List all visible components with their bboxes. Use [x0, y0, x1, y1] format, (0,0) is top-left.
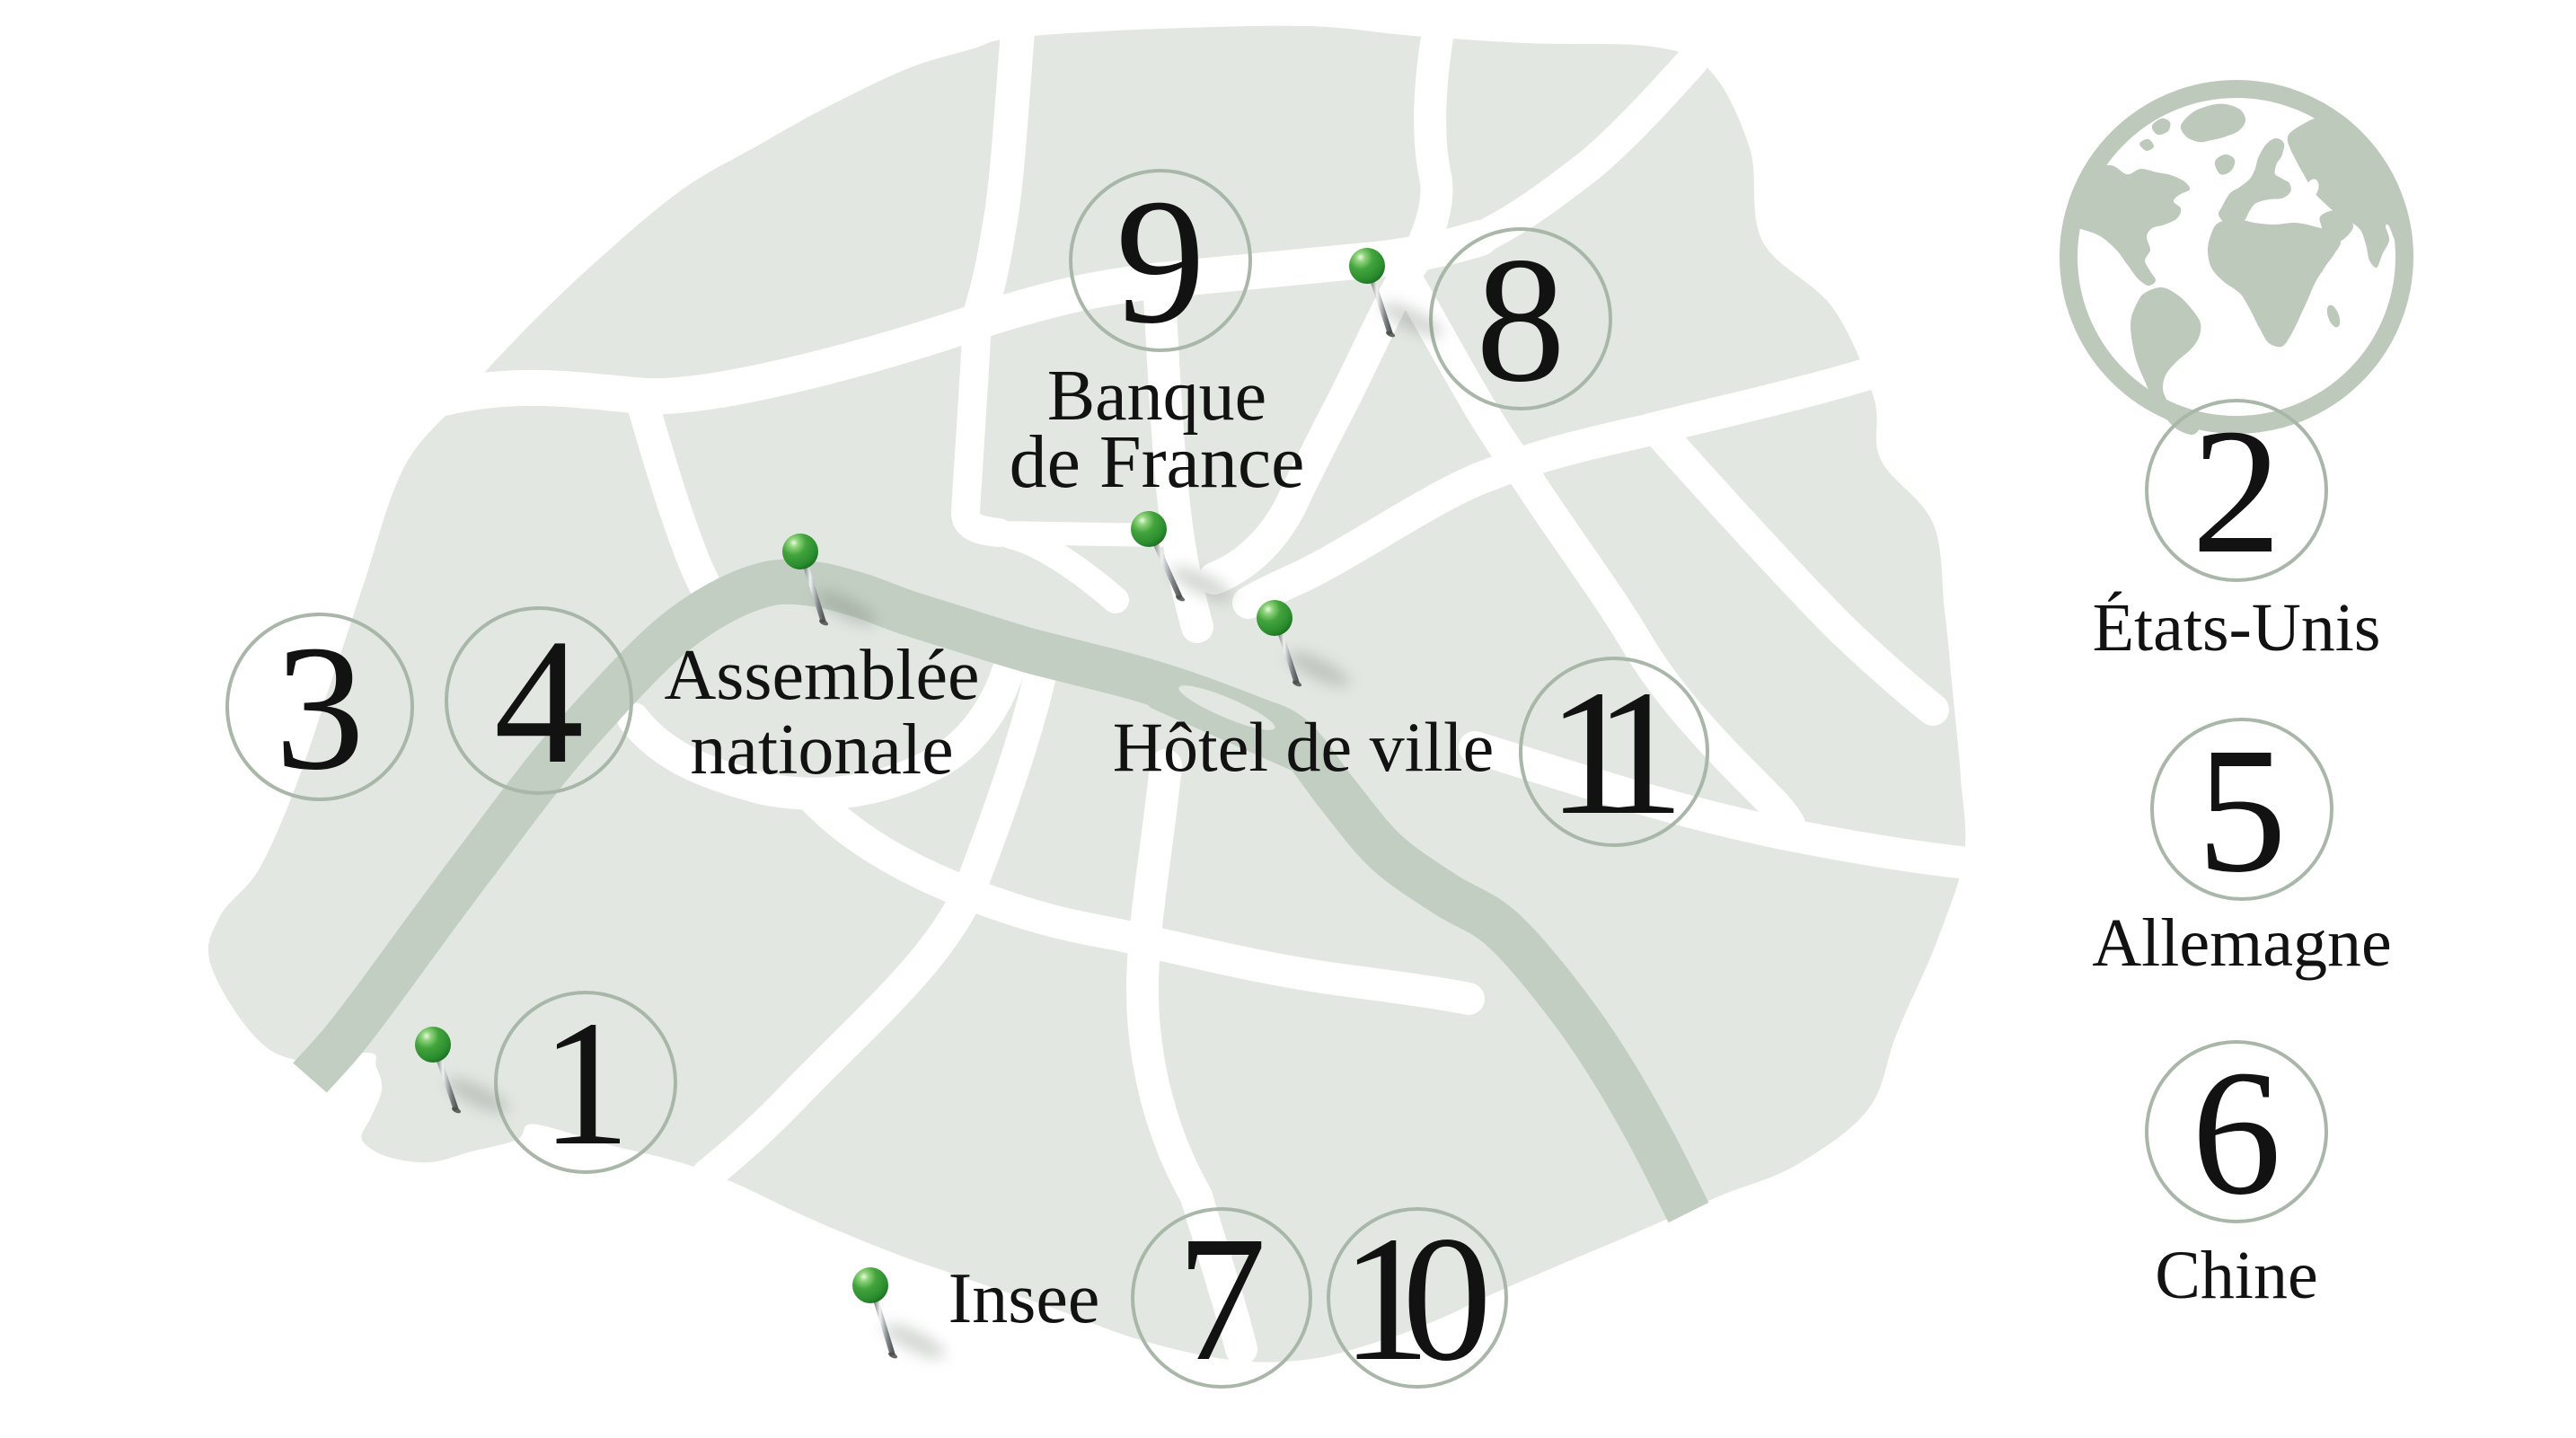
svg-text:Assemblée: Assemblée [664, 636, 979, 715]
svg-text:Allemagne: Allemagne [2092, 905, 2391, 981]
svg-text:Chine: Chine [2155, 1238, 2318, 1313]
svg-text:2: 2 [2192, 393, 2281, 591]
svg-text:6: 6 [2192, 1034, 2281, 1232]
svg-text:de France: de France [1010, 420, 1305, 504]
svg-text:Hôtel de ville: Hôtel de ville [1113, 708, 1495, 786]
svg-text:États-Unis: États-Unis [2093, 590, 2381, 666]
svg-text:4: 4 [494, 603, 584, 801]
svg-text:8: 8 [1476, 221, 1566, 419]
svg-text:nationale: nationale [690, 710, 953, 790]
svg-text:1: 1 [541, 984, 631, 1183]
svg-text:9: 9 [1116, 163, 1205, 361]
svg-text:5: 5 [2197, 711, 2287, 910]
svg-text:Insee: Insee [948, 1259, 1100, 1338]
svg-text:3: 3 [275, 609, 365, 807]
svg-text:7: 7 [1177, 1200, 1266, 1398]
